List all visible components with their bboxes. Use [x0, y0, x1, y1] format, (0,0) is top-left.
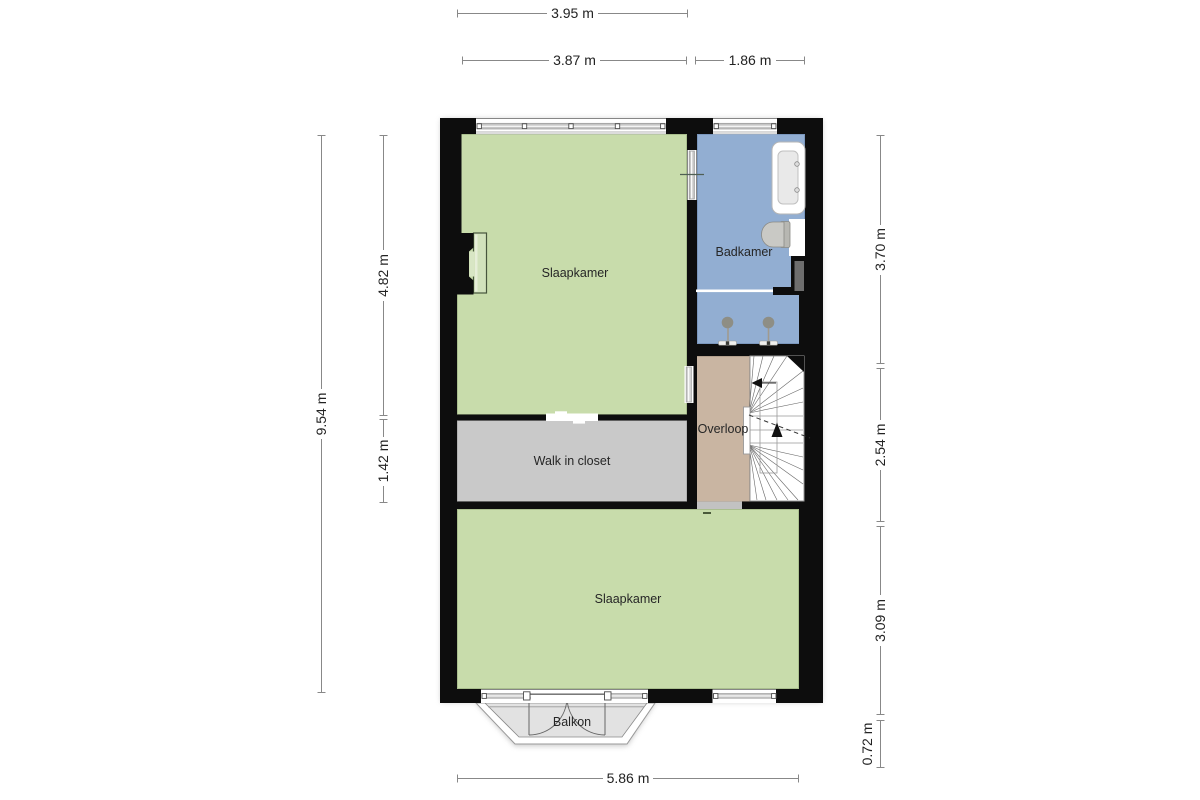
svg-text:Slaapkamer: Slaapkamer [595, 592, 662, 606]
svg-text:Badkamer: Badkamer [716, 245, 773, 259]
svg-text:4.82 m: 4.82 m [375, 254, 391, 297]
svg-text:9.54 m: 9.54 m [313, 393, 329, 436]
svg-text:1.42 m: 1.42 m [375, 440, 391, 483]
svg-text:Walk in closet: Walk in closet [534, 454, 611, 468]
svg-text:Slaapkamer: Slaapkamer [542, 266, 609, 280]
svg-text:0.72 m: 0.72 m [859, 723, 875, 766]
svg-text:2.54 m: 2.54 m [872, 424, 888, 467]
svg-text:1.86 m: 1.86 m [729, 52, 772, 68]
svg-text:3.09 m: 3.09 m [872, 599, 888, 642]
svg-text:5.86 m: 5.86 m [607, 770, 650, 786]
svg-text:3.70 m: 3.70 m [872, 228, 888, 271]
svg-text:Overloop: Overloop [698, 422, 749, 436]
svg-text:3.87 m: 3.87 m [553, 52, 596, 68]
svg-text:3.95 m: 3.95 m [551, 5, 594, 21]
svg-text:Balkon: Balkon [553, 715, 591, 729]
